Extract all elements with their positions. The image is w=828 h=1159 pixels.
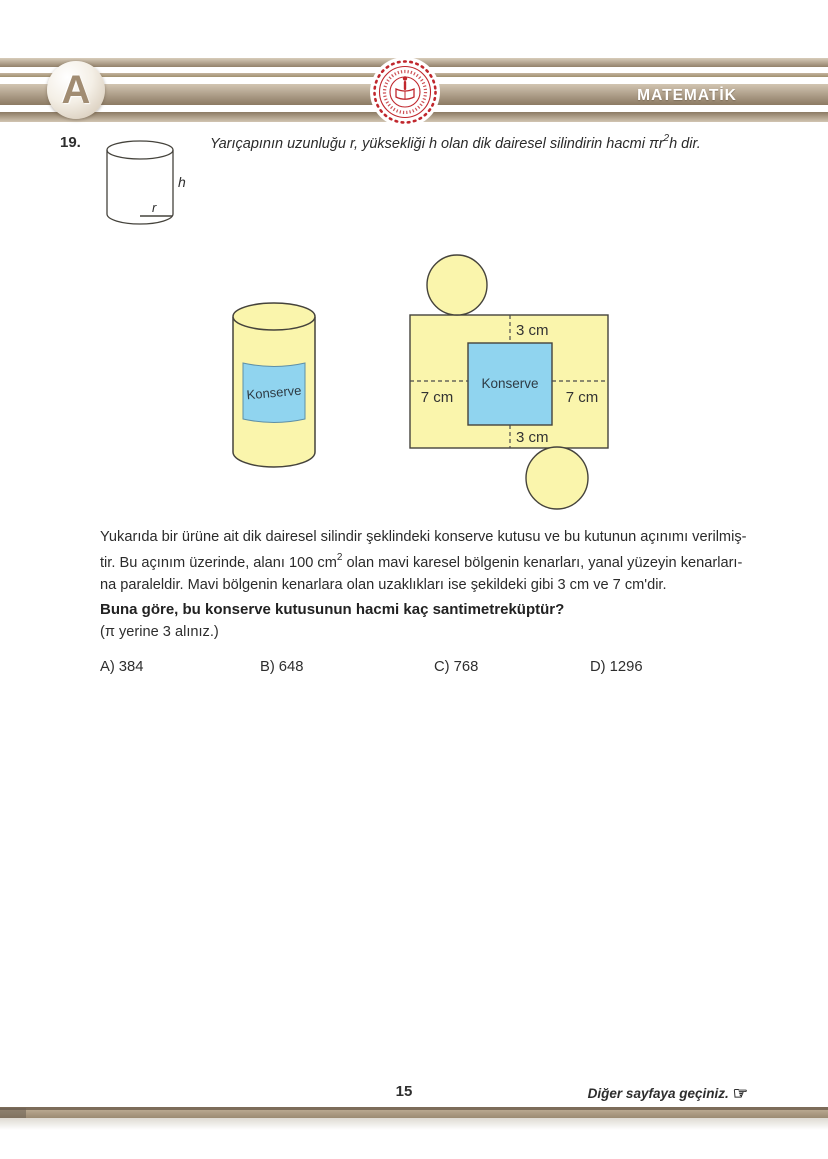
question-number: 19. [60, 134, 81, 151]
reference-cylinder-figure: r h [95, 137, 195, 242]
paragraph-line2-end: olan mavi karesel bölgenin kenarları, ya… [342, 555, 742, 571]
paragraph-superscript: 2 [337, 552, 343, 563]
exam-page: A MATEMATİK 19. Yarıçapının uzunluğu r, … [0, 0, 828, 1159]
option-b: B)648 [260, 659, 304, 675]
height-label: h [178, 174, 186, 190]
option-a-letter: A) [100, 659, 115, 675]
paragraph-line1: Yukarıda bir ürüne ait dik dairesel sili… [100, 529, 747, 545]
option-c-value: 768 [454, 659, 479, 675]
booklet-letter-badge: A [47, 61, 105, 119]
option-b-value: 648 [279, 659, 304, 675]
option-a: A)384 [100, 659, 144, 675]
dim-bottom-label: 3 cm [516, 429, 549, 446]
footer-shadow [0, 1118, 828, 1130]
question-prompt: Buna göre, bu konserve kutusunun hacmi k… [100, 601, 772, 618]
option-d: D)1296 [590, 659, 643, 675]
option-d-value: 1296 [610, 659, 643, 675]
next-page-text: Diğer sayfaya geçiniz. [588, 1086, 729, 1101]
intro-text-end: h dir. [669, 136, 701, 152]
next-page-note: Diğer sayfaya geçiniz.☞ [588, 1083, 748, 1103]
option-c-letter: C) [434, 659, 450, 675]
intro-superscript: 2 [664, 133, 670, 144]
option-b-letter: B) [260, 659, 275, 675]
meb-emblem-icon [368, 55, 442, 134]
question-paragraph: Yukarıda bir ürüne ait dik dairesel sili… [100, 526, 772, 596]
paragraph-line3: na paraleldir. Mavi bölgenin kenarlara o… [100, 577, 667, 593]
answer-options: A)384 B)648 C)768 D)1296 [0, 659, 828, 679]
can-and-net-figure: Konserve Konserve 3 cm 3 cm 7 cm 7 cm [220, 250, 630, 525]
radius-label: r [152, 200, 157, 215]
net-label: Konserve [481, 376, 538, 391]
paragraph-line2: tir. Bu açınım üzerinde, alanı 100 cm [100, 555, 337, 571]
pi-note: (π yerine 3 alınız.) [100, 624, 219, 640]
option-c: C)768 [434, 659, 478, 675]
dim-top-label: 3 cm [516, 322, 549, 339]
footer-rule [0, 1110, 828, 1118]
question-intro: Yarıçapının uzunluğu r, yüksekliği h ola… [210, 134, 750, 152]
subject-title: MATEMATİK [587, 86, 787, 105]
dim-left-label: 7 cm [421, 389, 454, 406]
page-number: 15 [374, 1083, 434, 1100]
pointing-hand-icon: ☞ [733, 1084, 748, 1103]
option-a-value: 384 [119, 659, 144, 675]
intro-text: Yarıçapının uzunluğu r, yüksekliği h ola… [210, 136, 664, 152]
option-d-letter: D) [590, 659, 606, 675]
dim-right-label: 7 cm [566, 389, 599, 406]
booklet-letter: A [62, 68, 91, 113]
